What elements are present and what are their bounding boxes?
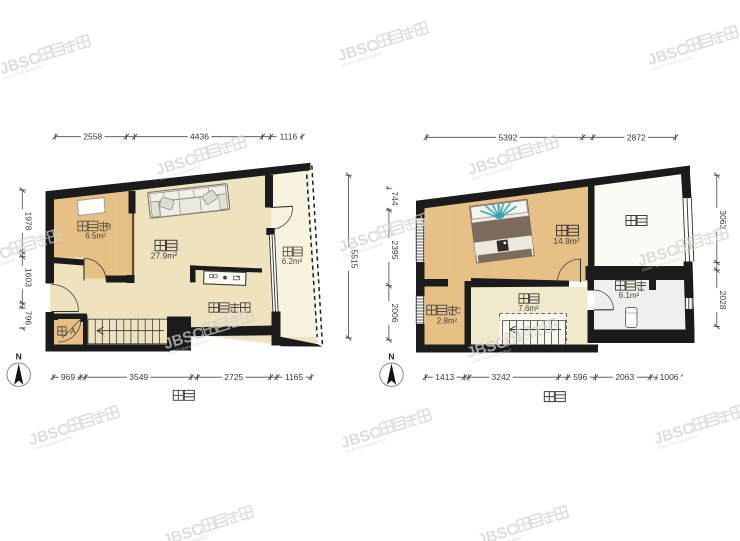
svg-text:3242: 3242 [492, 372, 511, 382]
svg-text:6.1m²: 6.1m² [619, 291, 640, 300]
svg-text:2.8m²: 2.8m² [437, 317, 458, 326]
svg-text:1978: 1978 [23, 212, 33, 231]
svg-text:2006: 2006 [390, 304, 400, 323]
svg-text:3549: 3549 [129, 372, 148, 382]
svg-text:7.6m²: 7.6m² [518, 304, 539, 313]
svg-text:2028: 2028 [718, 291, 728, 310]
svg-text:1006: 1006 [660, 372, 679, 382]
svg-text:2395: 2395 [390, 241, 400, 260]
svg-text:2063: 2063 [615, 372, 634, 382]
svg-text:1116: 1116 [280, 132, 298, 142]
svg-text:A: A [70, 327, 76, 336]
svg-text:2725: 2725 [224, 372, 243, 382]
svg-text:6.5m²: 6.5m² [85, 232, 106, 241]
svg-text:3063: 3063 [718, 210, 728, 229]
svg-text:N: N [16, 352, 22, 362]
svg-text:969: 969 [61, 372, 75, 382]
svg-text:5392: 5392 [498, 132, 517, 142]
svg-text:1165: 1165 [285, 372, 304, 382]
svg-text:14.9m²: 14.9m² [553, 236, 580, 246]
svg-text:796: 796 [23, 311, 33, 325]
svg-text:6.2m²: 6.2m² [282, 257, 303, 266]
svg-text:1603: 1603 [23, 268, 33, 287]
svg-text:1413: 1413 [435, 372, 454, 382]
svg-text:596: 596 [573, 372, 587, 382]
svg-text:2872: 2872 [627, 132, 646, 142]
svg-text:N: N [388, 352, 394, 362]
svg-text:C: C [455, 306, 461, 316]
svg-text:B: B [106, 222, 112, 232]
svg-text:744: 744 [390, 191, 400, 205]
svg-text:27.9m²: 27.9m² [151, 251, 178, 261]
svg-text:4436: 4436 [190, 132, 209, 142]
svg-text:2558: 2558 [83, 132, 102, 142]
